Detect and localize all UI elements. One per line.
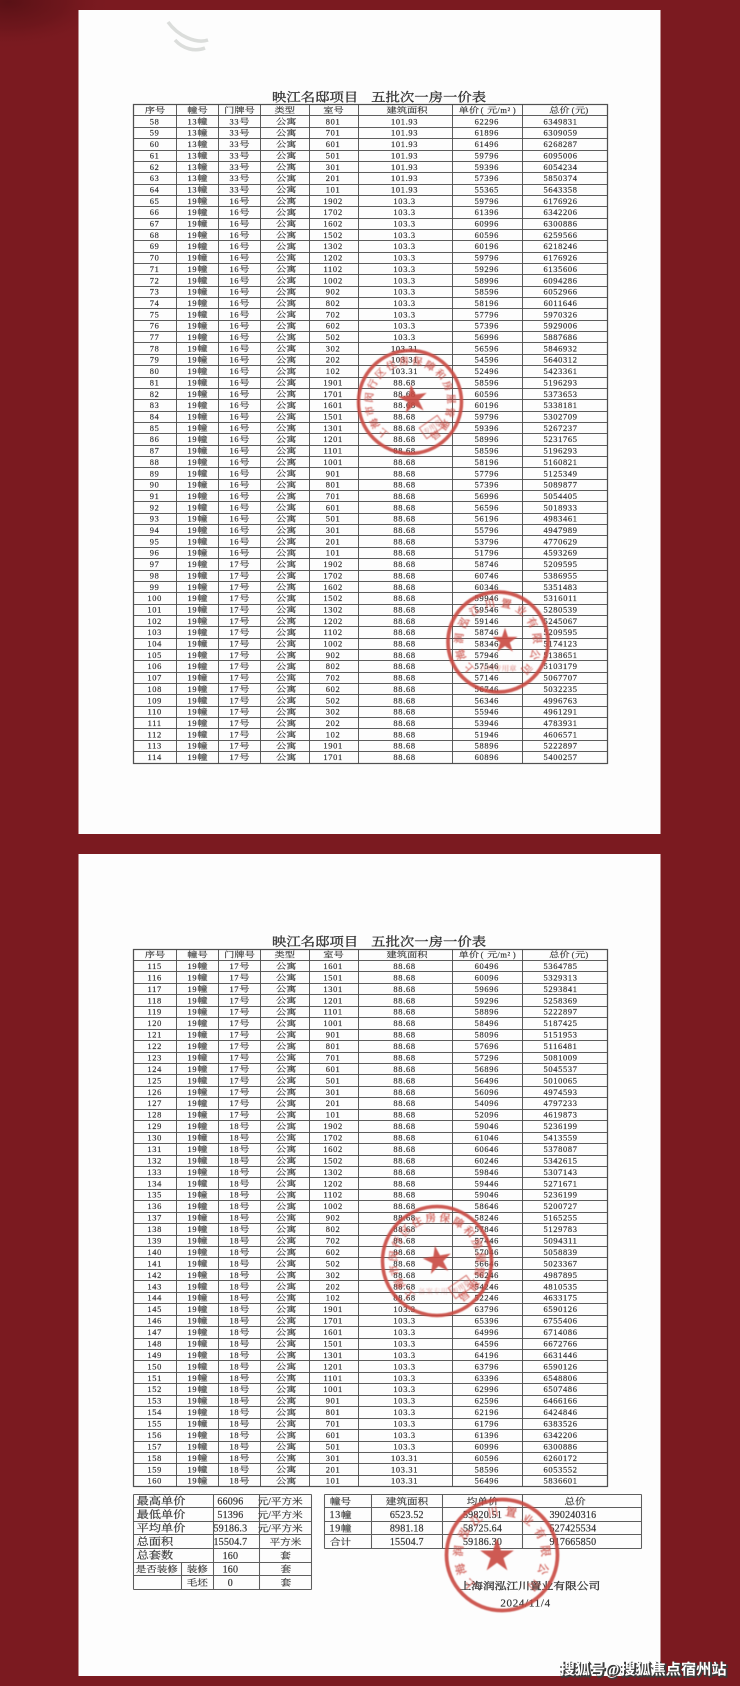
svg-text:18: 18 <box>230 1477 240 1486</box>
svg-text:301: 301 <box>326 1088 341 1097</box>
svg-text:126: 126 <box>147 1088 162 1097</box>
svg-text:5373653: 5373653 <box>543 390 577 399</box>
svg-text:19: 19 <box>188 1397 198 1406</box>
svg-text:19: 19 <box>188 1282 198 1291</box>
svg-text:18: 18 <box>230 1237 240 1246</box>
svg-text:19: 19 <box>188 730 198 739</box>
svg-text:17: 17 <box>230 685 240 694</box>
svg-text:6176926: 6176926 <box>543 254 577 263</box>
svg-text:58646: 58646 <box>475 1202 499 1211</box>
svg-text:108: 108 <box>147 685 162 694</box>
svg-text:(: ( <box>572 106 576 115</box>
svg-text:5423361: 5423361 <box>543 367 577 376</box>
svg-text:13: 13 <box>188 140 198 149</box>
svg-text:16: 16 <box>230 265 240 274</box>
svg-text:16: 16 <box>230 367 240 376</box>
svg-text:101.93: 101.93 <box>391 174 418 183</box>
svg-text:60196: 60196 <box>475 401 499 410</box>
svg-text:6507486: 6507486 <box>543 1385 577 1394</box>
svg-text:16: 16 <box>230 231 240 240</box>
svg-text:19: 19 <box>188 685 198 694</box>
svg-text:103.3: 103.3 <box>393 1431 415 1440</box>
svg-text:16: 16 <box>230 344 240 353</box>
svg-text:1101: 1101 <box>323 1374 342 1383</box>
svg-text:88.68: 88.68 <box>393 1065 415 1074</box>
svg-text:62196: 62196 <box>475 1408 499 1417</box>
svg-text:602: 602 <box>326 685 341 694</box>
svg-text:88.68: 88.68 <box>393 730 415 739</box>
svg-text:64996: 64996 <box>475 1328 499 1337</box>
svg-text:4996763: 4996763 <box>543 696 577 705</box>
svg-text:57696: 57696 <box>475 1042 499 1051</box>
svg-text:19: 19 <box>188 481 198 490</box>
svg-text:802: 802 <box>326 662 341 671</box>
svg-text:5245067: 5245067 <box>543 617 577 626</box>
svg-text:60096: 60096 <box>475 973 499 982</box>
svg-text:58596: 58596 <box>475 288 499 297</box>
svg-text:4606571: 4606571 <box>543 730 577 739</box>
svg-text:202: 202 <box>326 1282 341 1291</box>
svg-text:58746: 58746 <box>475 628 499 637</box>
svg-text:19: 19 <box>188 469 198 478</box>
svg-text:17: 17 <box>230 662 240 671</box>
svg-text:60646: 60646 <box>475 1145 499 1154</box>
svg-text:101.93: 101.93 <box>391 151 418 160</box>
svg-text:58596: 58596 <box>475 378 499 387</box>
svg-text:19: 19 <box>188 708 198 717</box>
svg-text:152: 152 <box>147 1385 162 1394</box>
svg-text:57396: 57396 <box>475 481 499 490</box>
svg-text:88.68: 88.68 <box>393 503 415 512</box>
svg-text:16: 16 <box>230 390 240 399</box>
svg-text:88.68: 88.68 <box>393 1122 415 1131</box>
svg-text:63796: 63796 <box>475 1362 499 1371</box>
svg-text:112: 112 <box>148 730 162 739</box>
svg-text:5236199: 5236199 <box>543 1191 577 1200</box>
svg-text:88.68: 88.68 <box>393 583 415 592</box>
svg-text:105: 105 <box>147 651 162 660</box>
svg-text:79: 79 <box>150 356 160 365</box>
svg-text:18: 18 <box>230 1214 240 1223</box>
svg-text:13: 13 <box>188 163 198 172</box>
svg-text:88.68: 88.68 <box>393 996 415 1005</box>
svg-text:88.68: 88.68 <box>393 594 415 603</box>
svg-text:91: 91 <box>150 492 160 501</box>
svg-text:57296: 57296 <box>475 1054 499 1063</box>
svg-text:16: 16 <box>230 333 240 342</box>
svg-text:60596: 60596 <box>475 1454 499 1463</box>
svg-text:59446: 59446 <box>475 1179 499 1188</box>
svg-text:19: 19 <box>188 1008 198 1017</box>
svg-text:6714086: 6714086 <box>543 1328 577 1337</box>
svg-text:160: 160 <box>147 1477 162 1486</box>
svg-text:6259566: 6259566 <box>543 231 577 240</box>
svg-text:5342615: 5342615 <box>543 1156 577 1165</box>
svg-text:19: 19 <box>188 985 198 994</box>
svg-text:59296: 59296 <box>475 996 499 1005</box>
svg-text:56346: 56346 <box>475 696 499 705</box>
svg-text:18: 18 <box>230 1317 240 1326</box>
svg-text:5887686: 5887686 <box>543 333 577 342</box>
svg-text:57396: 57396 <box>475 322 499 331</box>
svg-text:88.68: 88.68 <box>393 651 415 660</box>
svg-text:61046: 61046 <box>475 1134 499 1143</box>
svg-text:16: 16 <box>230 447 240 456</box>
svg-text:67: 67 <box>150 220 160 229</box>
svg-text:103.3: 103.3 <box>393 1374 415 1383</box>
svg-text:5329313: 5329313 <box>543 973 577 982</box>
svg-text:18: 18 <box>230 1351 240 1360</box>
svg-text:83: 83 <box>150 401 160 410</box>
svg-text:4619873: 4619873 <box>543 1111 577 1120</box>
svg-text:103.3: 103.3 <box>393 231 415 240</box>
svg-text:88.68: 88.68 <box>393 719 415 728</box>
svg-text:103.3: 103.3 <box>393 242 415 251</box>
svg-text:1601: 1601 <box>323 401 343 410</box>
svg-text:17: 17 <box>230 730 240 739</box>
svg-text:301: 301 <box>326 163 341 172</box>
svg-text:1702: 1702 <box>323 571 343 580</box>
svg-text:125: 125 <box>147 1076 162 1085</box>
svg-text:15504.7: 15504.7 <box>390 1537 424 1548</box>
svg-text:58: 58 <box>150 117 160 126</box>
svg-text:101.93: 101.93 <box>391 129 418 138</box>
svg-text:54596: 54596 <box>475 356 499 365</box>
svg-text:0: 0 <box>228 1578 233 1589</box>
svg-text:19: 19 <box>188 1191 198 1200</box>
svg-text:902: 902 <box>326 1214 341 1223</box>
svg-text:17: 17 <box>230 742 240 751</box>
svg-text:1501: 1501 <box>323 413 343 422</box>
svg-text:70: 70 <box>150 254 160 263</box>
svg-text:1301: 1301 <box>323 1351 343 1360</box>
svg-text:16: 16 <box>230 356 240 365</box>
svg-text:88.68: 88.68 <box>393 458 415 467</box>
svg-text:16: 16 <box>230 481 240 490</box>
svg-text:19: 19 <box>188 208 198 217</box>
svg-text:4987895: 4987895 <box>543 1271 577 1280</box>
svg-text:5023367: 5023367 <box>543 1259 577 1268</box>
svg-text:5032235: 5032235 <box>543 685 577 694</box>
svg-text:18: 18 <box>230 1305 240 1314</box>
svg-text:138: 138 <box>147 1225 162 1234</box>
svg-text:19: 19 <box>188 1340 198 1349</box>
svg-text:502: 502 <box>326 333 341 342</box>
svg-text:17: 17 <box>230 996 240 1005</box>
svg-text:63: 63 <box>150 174 160 183</box>
svg-text:19: 19 <box>188 1042 198 1051</box>
svg-text:103.3: 103.3 <box>393 299 415 308</box>
svg-text:58096: 58096 <box>475 1031 499 1040</box>
svg-text:6672766: 6672766 <box>543 1340 577 1349</box>
svg-text:@: @ <box>605 1662 619 1679</box>
svg-text:155: 155 <box>147 1420 162 1429</box>
svg-text:(: ( <box>481 106 485 115</box>
svg-text:5386955: 5386955 <box>543 571 577 580</box>
svg-text:19: 19 <box>188 526 198 535</box>
svg-text:302: 302 <box>326 344 341 353</box>
svg-text:19: 19 <box>188 1294 198 1303</box>
svg-text:58596: 58596 <box>475 1465 499 1474</box>
svg-text:901: 901 <box>326 469 341 478</box>
svg-text:57396: 57396 <box>475 174 499 183</box>
svg-text:6309059: 6309059 <box>543 129 577 138</box>
svg-text:55796: 55796 <box>475 526 499 535</box>
svg-text:101.93: 101.93 <box>391 117 418 126</box>
svg-text:33: 33 <box>230 151 240 160</box>
svg-text:88.68: 88.68 <box>393 549 415 558</box>
svg-text:5316011: 5316011 <box>544 594 578 603</box>
svg-text:19: 19 <box>188 1408 198 1417</box>
svg-text:17: 17 <box>230 560 240 569</box>
svg-text:19: 19 <box>188 1088 198 1097</box>
svg-text:4983461: 4983461 <box>543 515 577 524</box>
svg-text:17: 17 <box>230 1111 240 1120</box>
svg-text:19: 19 <box>188 549 198 558</box>
svg-text:19: 19 <box>188 435 198 444</box>
svg-text:1302: 1302 <box>323 1168 343 1177</box>
svg-text:1102: 1102 <box>323 628 342 637</box>
svg-text:88.68: 88.68 <box>393 560 415 569</box>
svg-text:88.68: 88.68 <box>393 606 415 615</box>
svg-text:5231765: 5231765 <box>543 435 577 444</box>
svg-text:103.3: 103.3 <box>393 1340 415 1349</box>
svg-text:103.3: 103.3 <box>393 265 415 274</box>
svg-text:13: 13 <box>330 1510 341 1521</box>
svg-text:16: 16 <box>230 322 240 331</box>
svg-text:123: 123 <box>147 1054 162 1063</box>
svg-text:97: 97 <box>150 560 160 569</box>
svg-text:57796: 57796 <box>475 469 499 478</box>
svg-text:5058839: 5058839 <box>543 1248 577 1257</box>
svg-text:1602: 1602 <box>323 220 343 229</box>
svg-text:18: 18 <box>230 1145 240 1154</box>
svg-text:102: 102 <box>147 617 162 626</box>
svg-text:4797233: 4797233 <box>543 1099 577 1108</box>
svg-text:5067707: 5067707 <box>543 674 577 683</box>
svg-text:5236199: 5236199 <box>543 1122 577 1131</box>
svg-text:4974593: 4974593 <box>543 1088 577 1097</box>
svg-text:127: 127 <box>147 1099 162 1108</box>
svg-text:19: 19 <box>188 367 198 376</box>
svg-text:16: 16 <box>230 208 240 217</box>
svg-text:88.68: 88.68 <box>393 1156 415 1165</box>
svg-text:5293841: 5293841 <box>543 985 577 994</box>
svg-text:19: 19 <box>188 1374 198 1383</box>
svg-text:94: 94 <box>150 526 160 535</box>
svg-text:33: 33 <box>230 117 240 126</box>
svg-text:/: / <box>268 1511 271 1521</box>
svg-text:1302: 1302 <box>323 606 343 615</box>
svg-text:4961291: 4961291 <box>543 708 577 717</box>
svg-text:88.68: 88.68 <box>393 1202 415 1211</box>
svg-text:89: 89 <box>150 469 160 478</box>
svg-text:17: 17 <box>230 651 240 660</box>
svg-text:55365: 55365 <box>475 186 499 195</box>
svg-text:5258369: 5258369 <box>543 996 577 1005</box>
svg-text:13: 13 <box>188 174 198 183</box>
svg-text:149: 149 <box>147 1351 162 1360</box>
svg-text:56996: 56996 <box>475 492 499 501</box>
svg-text:103.3: 103.3 <box>393 276 415 285</box>
svg-text:301: 301 <box>326 526 341 535</box>
svg-text:501: 501 <box>326 151 341 160</box>
svg-text:101: 101 <box>326 186 341 195</box>
svg-text:19: 19 <box>188 962 198 971</box>
svg-text:1602: 1602 <box>323 1145 343 1154</box>
svg-text:109: 109 <box>147 696 162 705</box>
svg-text:602: 602 <box>326 1248 341 1257</box>
svg-text:107: 107 <box>147 674 162 683</box>
svg-text:68: 68 <box>150 231 160 240</box>
svg-text:1001: 1001 <box>323 1019 343 1028</box>
svg-text:4810535: 4810535 <box>543 1282 577 1291</box>
svg-text:88.68: 88.68 <box>393 1168 415 1177</box>
svg-text:140: 140 <box>147 1248 162 1257</box>
svg-text:98: 98 <box>150 571 160 580</box>
svg-text:18: 18 <box>230 1408 240 1417</box>
svg-text:62996: 62996 <box>475 1385 499 1394</box>
svg-text:52096: 52096 <box>475 1111 499 1120</box>
svg-text:17: 17 <box>230 973 240 982</box>
svg-text:19: 19 <box>188 719 198 728</box>
svg-text:702: 702 <box>326 1237 341 1246</box>
svg-text:601: 601 <box>326 503 341 512</box>
svg-text:1202: 1202 <box>323 254 343 263</box>
svg-text:88.68: 88.68 <box>393 1111 415 1120</box>
svg-text:19: 19 <box>188 1225 198 1234</box>
svg-text:18: 18 <box>230 1454 240 1463</box>
svg-text:17: 17 <box>230 1008 240 1017</box>
svg-text:5116481: 5116481 <box>544 1042 578 1051</box>
svg-text:19: 19 <box>188 265 198 274</box>
svg-text:58596: 58596 <box>475 447 499 456</box>
svg-text:901: 901 <box>326 1397 341 1406</box>
svg-text:59296: 59296 <box>475 265 499 274</box>
svg-text:19: 19 <box>188 288 198 297</box>
svg-text:19: 19 <box>188 1145 198 1154</box>
svg-text:142: 142 <box>147 1271 162 1280</box>
svg-text:5970326: 5970326 <box>543 310 577 319</box>
svg-text:60: 60 <box>150 140 160 149</box>
svg-text:19: 19 <box>188 583 198 592</box>
svg-text:19: 19 <box>188 1442 198 1451</box>
svg-text:301: 301 <box>326 1454 341 1463</box>
svg-text:56196: 56196 <box>475 515 499 524</box>
svg-text:77: 77 <box>150 333 160 342</box>
svg-text:58196: 58196 <box>475 299 499 308</box>
svg-text:88.68: 88.68 <box>393 1031 415 1040</box>
svg-text:58346: 58346 <box>475 640 499 649</box>
svg-text:16: 16 <box>230 254 240 263</box>
svg-text:19: 19 <box>188 1328 198 1337</box>
svg-text:5850374: 5850374 <box>543 174 577 183</box>
svg-text:136: 136 <box>147 1202 162 1211</box>
svg-text:19: 19 <box>188 1122 198 1131</box>
svg-text:130: 130 <box>147 1134 162 1143</box>
svg-text:501: 501 <box>326 515 341 524</box>
svg-text:19: 19 <box>188 1305 198 1314</box>
svg-text:88.68: 88.68 <box>393 628 415 637</box>
svg-text:88.68: 88.68 <box>393 413 415 422</box>
svg-text:153: 153 <box>147 1397 162 1406</box>
svg-text:58996: 58996 <box>475 276 499 285</box>
svg-text:60996: 60996 <box>475 1442 499 1451</box>
svg-text:1901: 1901 <box>323 1305 343 1314</box>
svg-text:93: 93 <box>150 515 160 524</box>
svg-text:88.68: 88.68 <box>393 617 415 626</box>
svg-text:5125349: 5125349 <box>543 469 577 478</box>
svg-text:19: 19 <box>188 322 198 331</box>
svg-text:60996: 60996 <box>475 220 499 229</box>
svg-text:/: / <box>268 1498 271 1508</box>
svg-text:19: 19 <box>188 333 198 342</box>
svg-text:19: 19 <box>188 447 198 456</box>
svg-text:103.3: 103.3 <box>393 1317 415 1326</box>
svg-text:103.31: 103.31 <box>391 1465 418 1474</box>
svg-text:1302: 1302 <box>323 242 343 251</box>
svg-text:19: 19 <box>188 1477 198 1486</box>
svg-text:58196: 58196 <box>475 458 499 467</box>
svg-text:52496: 52496 <box>475 367 499 376</box>
svg-text:88.68: 88.68 <box>393 685 415 694</box>
svg-text:13: 13 <box>188 129 198 138</box>
svg-text:18: 18 <box>230 1397 240 1406</box>
svg-text:58496: 58496 <box>475 1019 499 1028</box>
svg-text:51396: 51396 <box>217 1510 243 1521</box>
svg-text:88.68: 88.68 <box>393 662 415 671</box>
svg-text:5307143: 5307143 <box>543 1168 577 1177</box>
svg-text:6176926: 6176926 <box>543 197 577 206</box>
svg-text:17: 17 <box>230 571 240 580</box>
svg-text:92: 92 <box>150 503 160 512</box>
svg-text:19: 19 <box>188 413 198 422</box>
svg-text:129: 129 <box>147 1122 162 1131</box>
svg-text:85: 85 <box>150 424 160 433</box>
svg-text:18: 18 <box>230 1191 240 1200</box>
svg-text:60896: 60896 <box>475 753 499 762</box>
svg-text:502: 502 <box>326 696 341 705</box>
svg-text:19: 19 <box>188 537 198 546</box>
svg-text:88.68: 88.68 <box>393 526 415 535</box>
svg-text:6053552: 6053552 <box>543 1465 577 1474</box>
svg-text:802: 802 <box>326 1225 341 1234</box>
svg-text:5836601: 5836601 <box>543 1477 577 1486</box>
svg-text:19: 19 <box>188 1168 198 1177</box>
svg-text:19: 19 <box>188 503 198 512</box>
svg-text:1601: 1601 <box>323 962 343 971</box>
svg-text:5640312: 5640312 <box>543 356 577 365</box>
svg-text:102: 102 <box>326 730 341 739</box>
svg-text:): ) <box>513 951 517 960</box>
svg-text:60746: 60746 <box>475 571 499 580</box>
svg-text:88: 88 <box>150 458 160 467</box>
svg-text:801: 801 <box>326 1408 341 1417</box>
svg-text:58996: 58996 <box>475 435 499 444</box>
svg-text:16: 16 <box>230 378 240 387</box>
svg-text:102: 102 <box>326 1294 341 1303</box>
svg-text:18: 18 <box>230 1431 240 1440</box>
svg-text:64596: 64596 <box>475 1340 499 1349</box>
svg-text:58746: 58746 <box>475 560 499 569</box>
svg-text:116: 116 <box>148 973 162 982</box>
svg-text:124: 124 <box>147 1065 162 1074</box>
svg-text:57546: 57546 <box>475 662 499 671</box>
svg-text:16: 16 <box>230 220 240 229</box>
svg-text:19: 19 <box>188 356 198 365</box>
svg-text:/m²: /m² <box>497 951 510 960</box>
svg-text:59: 59 <box>150 129 160 138</box>
